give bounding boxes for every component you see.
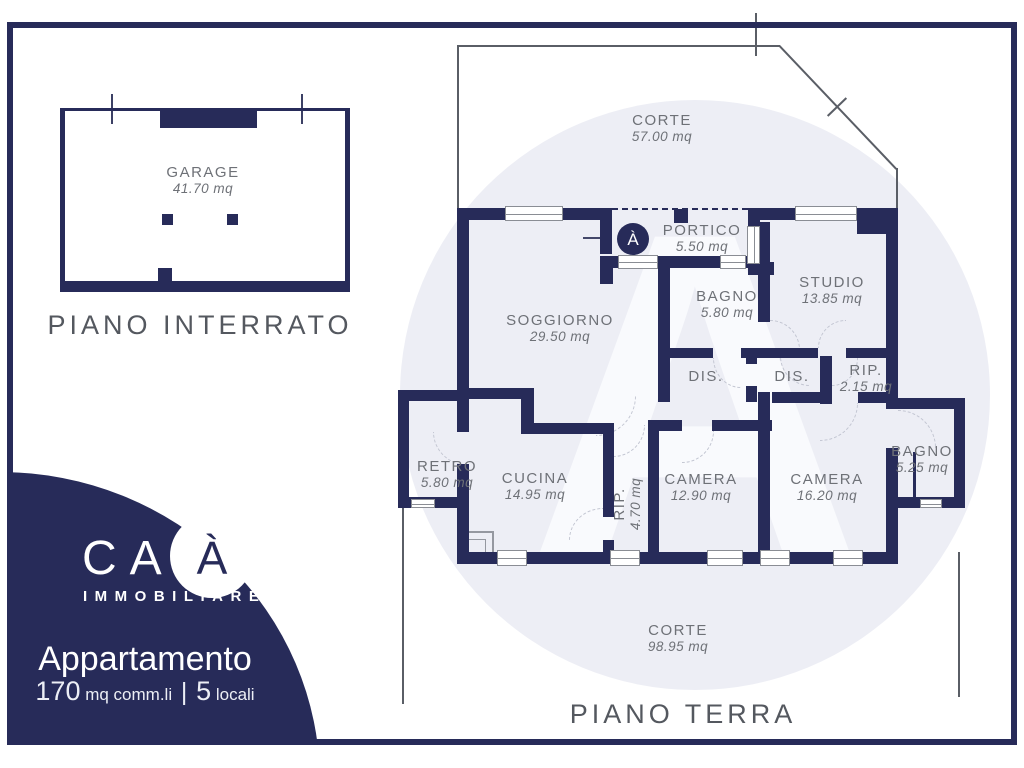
listing-locali-value: 5 [196, 676, 211, 706]
floorplan-sheet: A GARAGE 41.70 mq PIANO INTERRATO CORTE … [0, 0, 1024, 768]
listing-details: 170 mq comm.li | 5 locali [0, 676, 290, 707]
listing-locali-unit: locali [216, 685, 255, 704]
listing-size-value: 170 [35, 676, 80, 706]
listing-type: Appartamento [0, 640, 290, 679]
logo-blob-clip [7, 22, 1017, 745]
brand-accent-circle: À [170, 514, 254, 598]
listing-divider: | [177, 678, 192, 706]
brand-accent-letter: À [197, 532, 228, 584]
brand-subtitle: IMMOBILIARE [83, 588, 266, 605]
listing-size-unit: mq comm.li [85, 685, 172, 704]
